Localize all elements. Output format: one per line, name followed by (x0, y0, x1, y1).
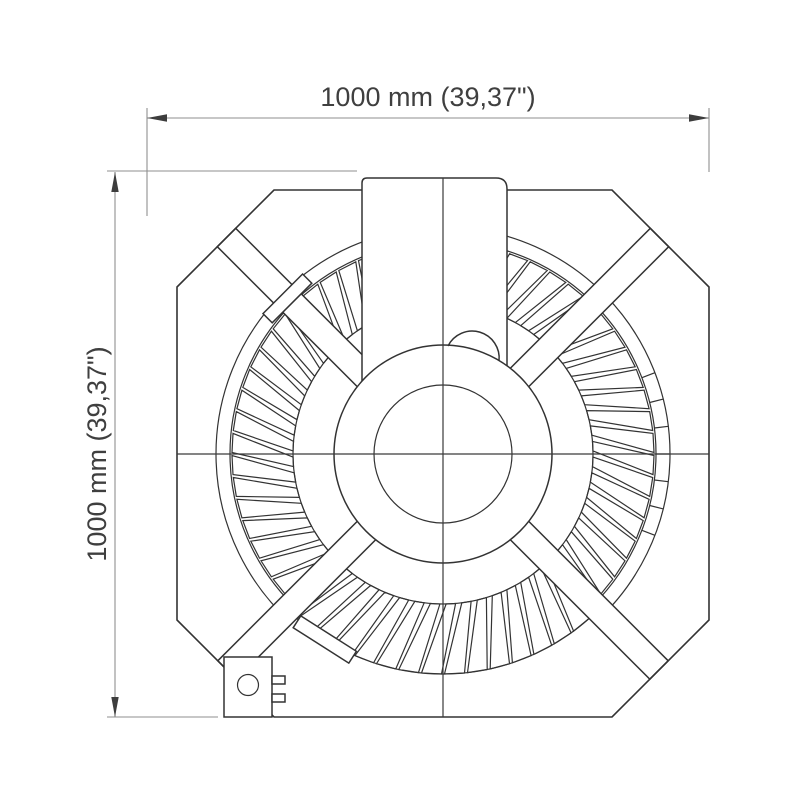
junction-box (224, 657, 285, 717)
width-arrow-left (147, 114, 167, 121)
front-blade-lower-left (293, 616, 356, 663)
junction-box-body (224, 657, 272, 717)
height-dimension-label: 1000 mm (39,37") (82, 346, 112, 561)
width-arrow-right (689, 114, 709, 121)
height-arrow-top (111, 172, 118, 192)
width-dimension-label: 1000 mm (39,37") (320, 82, 535, 112)
junction-box-gland-top (272, 676, 285, 684)
fan-front-view-drawing: 1000 mm (39,37") 1000 mm (39,37") (0, 0, 800, 800)
fan-technical-drawing-page: 1000 mm (39,37") 1000 mm (39,37") (0, 0, 800, 800)
height-arrow-bottom (111, 697, 118, 717)
junction-box-gland-bottom (272, 694, 285, 702)
